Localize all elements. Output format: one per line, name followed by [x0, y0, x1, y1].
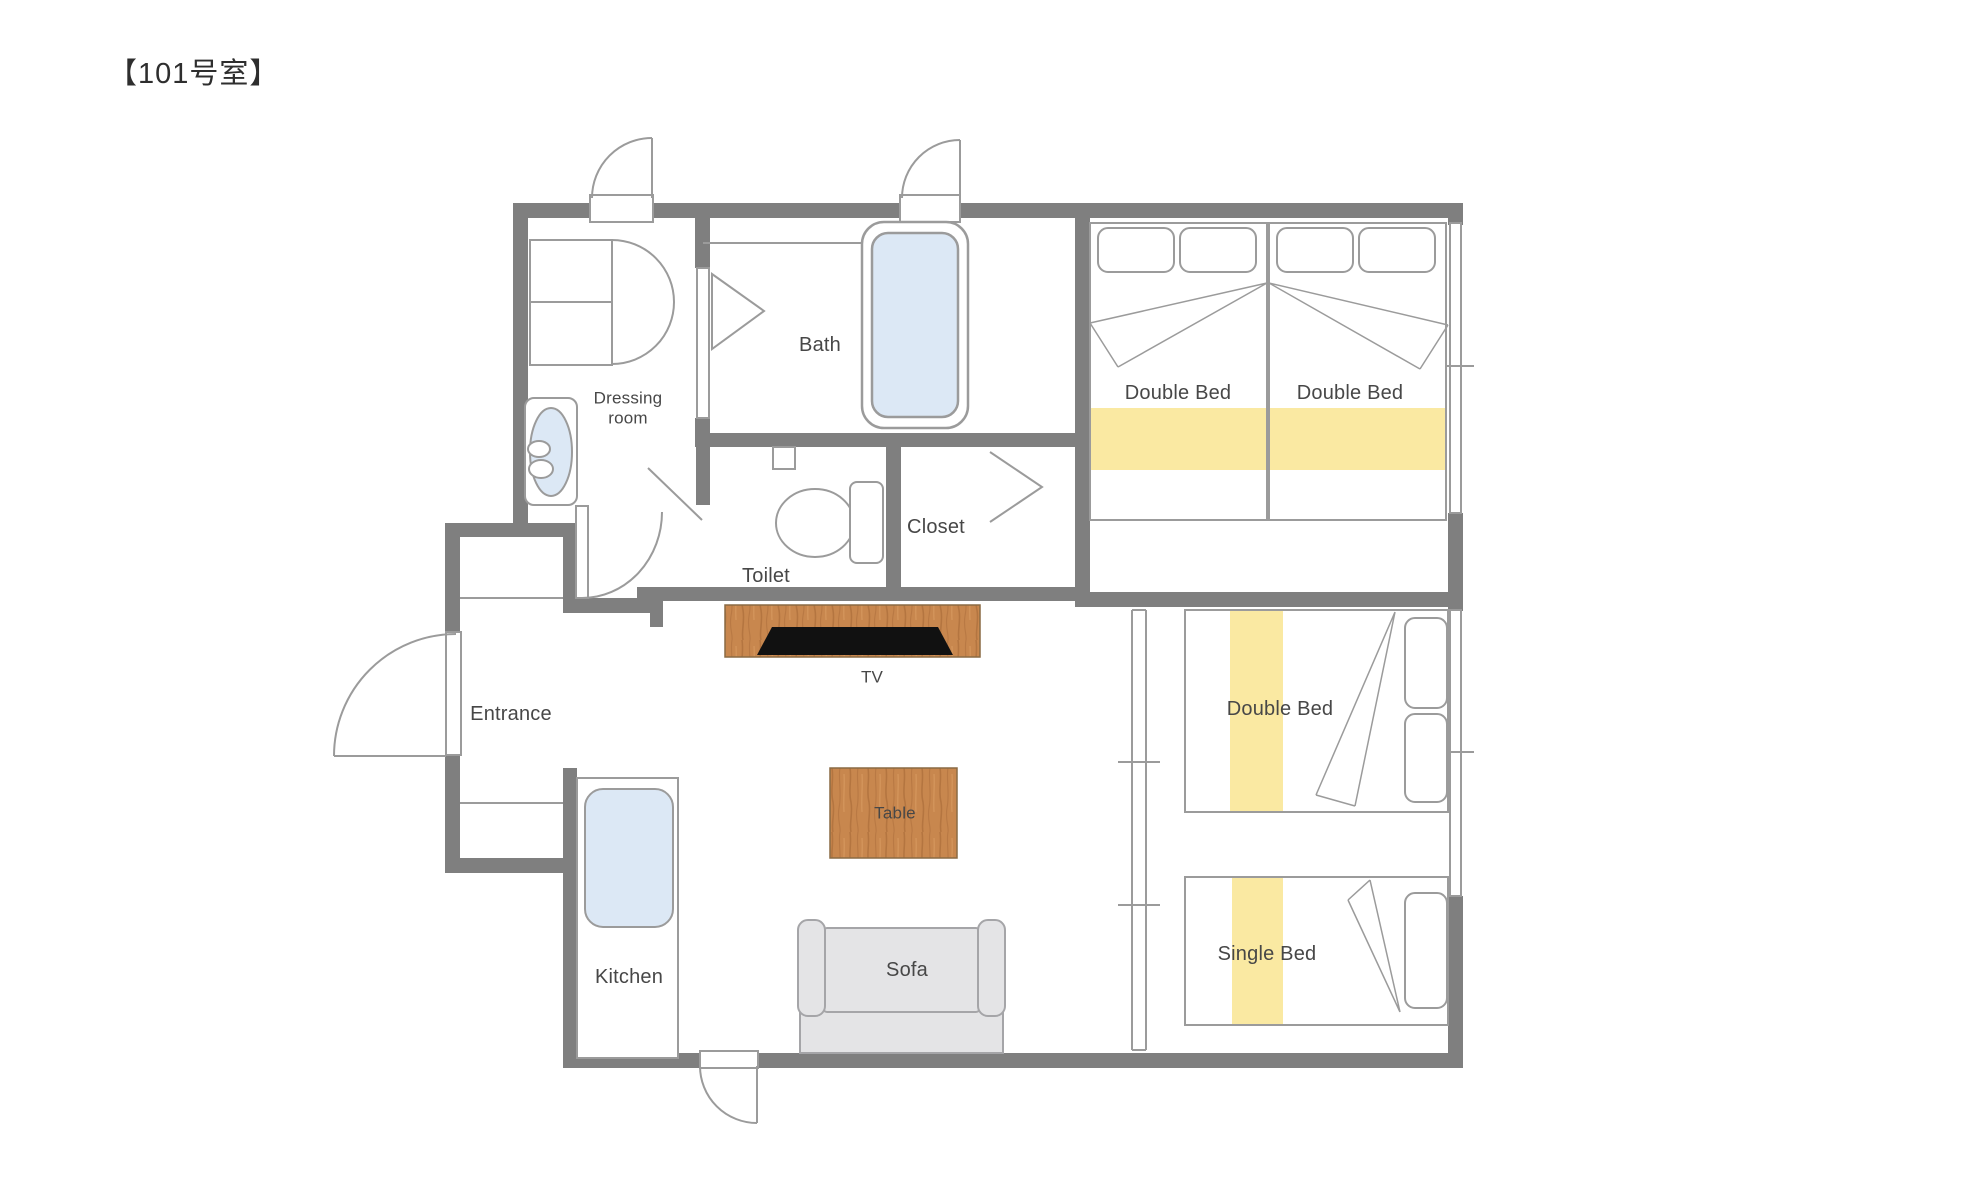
sofa-armrest-left [798, 920, 825, 1016]
room-label-toilet: Toilet [742, 565, 790, 587]
wall-entrance-bottom [445, 858, 575, 873]
wall-toilet-west-1 [696, 447, 710, 505]
wall-bedroom-west [1075, 218, 1090, 607]
room-label-kitchen: Kitchen [595, 966, 663, 988]
door-dressing-south-leaf [648, 468, 702, 520]
wall-entrance-left-2 [445, 755, 460, 873]
tv-stand [725, 605, 980, 657]
furniture-label-table: Table [874, 803, 916, 822]
sofa-armrest-right [978, 920, 1005, 1016]
room-label-dressing-line1: Dressing [594, 388, 663, 407]
floor-plan-drawing [0, 0, 1968, 1181]
door-dressing-south-arc [582, 512, 662, 598]
sofa-seat [800, 1008, 1003, 1053]
bed-label-single: Single Bed [1218, 943, 1317, 965]
window-upper [1450, 223, 1461, 513]
door-dressing-top-panel [590, 195, 653, 222]
door-bath-top-panel [900, 195, 960, 222]
door-closet-fold [990, 452, 1042, 522]
pillow [1405, 618, 1447, 708]
room-label-bath: Bath [799, 334, 841, 356]
wall-passage-stub-cap [650, 613, 663, 627]
wall-row-south [637, 587, 1090, 601]
toilet-bowl [776, 489, 854, 557]
wall-toilet-closet [886, 447, 901, 600]
door-bottom-arc [700, 1066, 757, 1123]
door-dressing-south-panel [576, 506, 588, 598]
door-bath-top-arc [902, 140, 960, 198]
tv [757, 627, 953, 655]
toilet-paper-holder [773, 447, 795, 469]
wall-entrance-left-1 [445, 523, 460, 632]
furniture-label-sofa: Sofa [886, 959, 928, 981]
floor-plan-page: 【101号室】 Dressing room Bath Toilet Closet… [0, 0, 1968, 1181]
upper-bedroom-beds [1090, 223, 1448, 520]
door-bath-triangle [712, 274, 764, 349]
door-dressing-top-arc [592, 138, 652, 198]
sofa [798, 920, 1005, 1053]
washing-machine [530, 240, 674, 365]
entrance-door-panel [446, 632, 461, 755]
kitchen-counter [577, 778, 678, 1058]
wall-top-2 [653, 203, 900, 218]
pillow [1277, 228, 1353, 272]
door-bath-sliding-panel [697, 268, 709, 418]
bed-label-double-2: Double Bed [1297, 382, 1404, 404]
room-label-dressing-line2: room [608, 408, 648, 427]
wall-top-3 [960, 203, 1463, 218]
entrance-door-arc [334, 634, 456, 756]
door-bottom-panel [700, 1051, 758, 1068]
bathroom-sink [525, 398, 577, 505]
wall-right-3 [1448, 896, 1463, 1068]
furniture-label-tv: TV [861, 667, 883, 686]
wall-top-1 [513, 203, 590, 218]
kitchen-sink [585, 789, 673, 927]
wall-kitchen-west-2 [563, 768, 577, 1068]
room-label-dressing: Dressing room [594, 388, 663, 427]
wall-bath-south [710, 433, 1090, 447]
wall-bath-west-2 [695, 418, 710, 447]
faucet-knob-2 [529, 460, 553, 478]
double-bed-1-stripe [1091, 408, 1266, 470]
wall-bedroom-divider [1075, 592, 1453, 607]
pillow [1359, 228, 1435, 272]
pillow [1405, 893, 1447, 1008]
faucet-knob-1 [528, 441, 550, 457]
bathtub [862, 222, 968, 428]
double-bed-2-stripe [1270, 408, 1445, 470]
page-title: 【101号室】 [108, 58, 279, 90]
toilet-fixture [773, 447, 883, 563]
wall-dressing-south [445, 523, 577, 537]
pillow [1180, 228, 1256, 272]
pillow [1405, 714, 1447, 802]
pillow [1098, 228, 1174, 272]
room-label-closet: Closet [907, 516, 965, 538]
bed-label-double-1: Double Bed [1125, 382, 1232, 404]
room-label-entrance: Entrance [470, 703, 552, 725]
wall-bottom-2 [758, 1053, 1463, 1068]
bed-label-double-3: Double Bed [1227, 698, 1334, 720]
toilet-tank [850, 482, 883, 563]
